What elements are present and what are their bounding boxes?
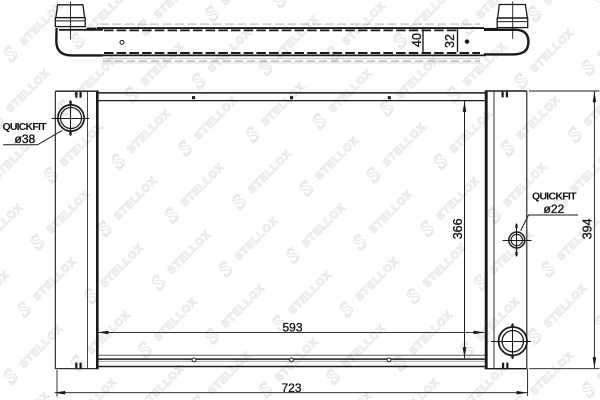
svg-text:723: 723	[282, 381, 302, 395]
svg-text:366: 366	[451, 218, 465, 239]
svg-text:ø22: ø22	[544, 202, 565, 216]
svg-text:394: 394	[580, 218, 594, 239]
svg-text:593: 593	[283, 320, 303, 334]
svg-text:32: 32	[443, 34, 457, 48]
svg-text:QUICKFIT: QUICKFIT	[532, 190, 577, 202]
svg-text:ø38: ø38	[15, 132, 36, 146]
svg-text:40: 40	[410, 33, 424, 47]
